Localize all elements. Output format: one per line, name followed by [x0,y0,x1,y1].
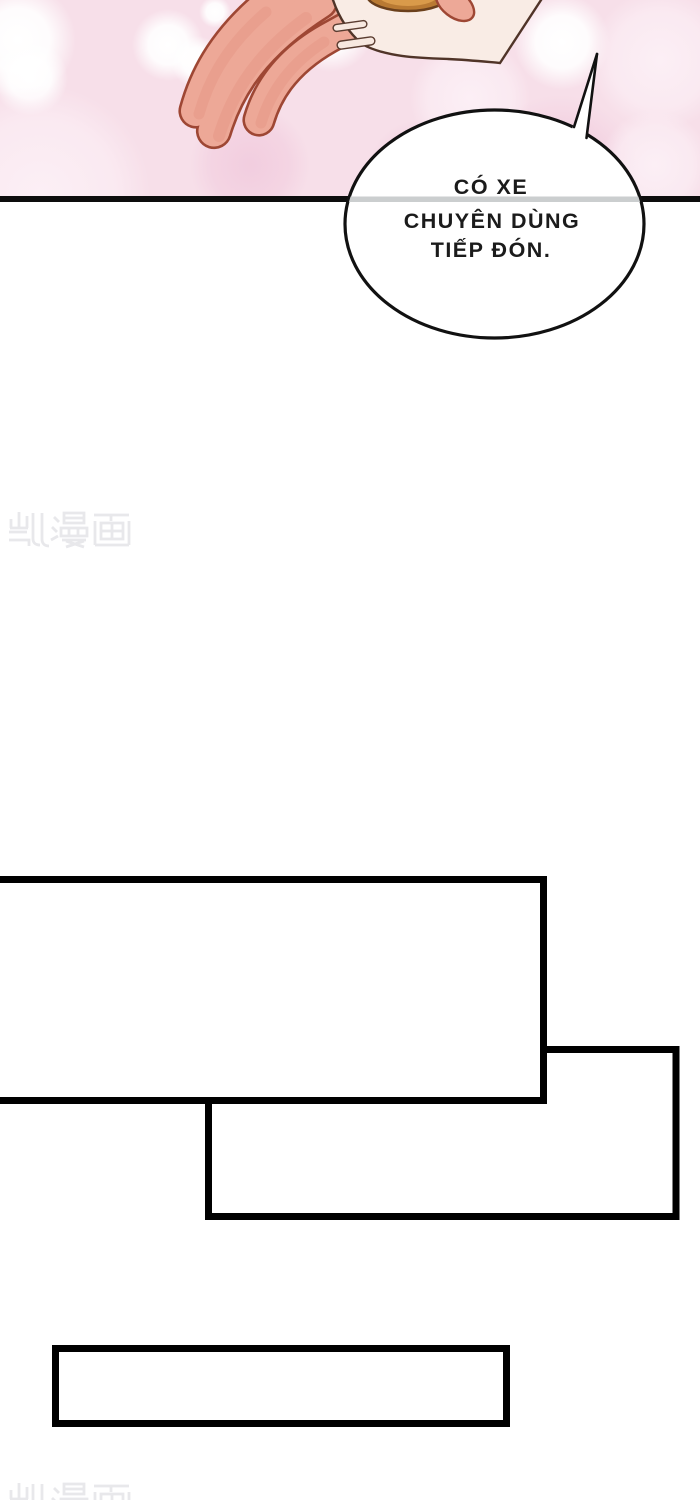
svg-text:CÓ XE: CÓ XE [454,174,528,199]
svg-text:CHUYÊN DÙNG: CHUYÊN DÙNG [404,208,581,233]
svg-text:TIẾP ĐÓN.: TIẾP ĐÓN. [431,237,552,262]
